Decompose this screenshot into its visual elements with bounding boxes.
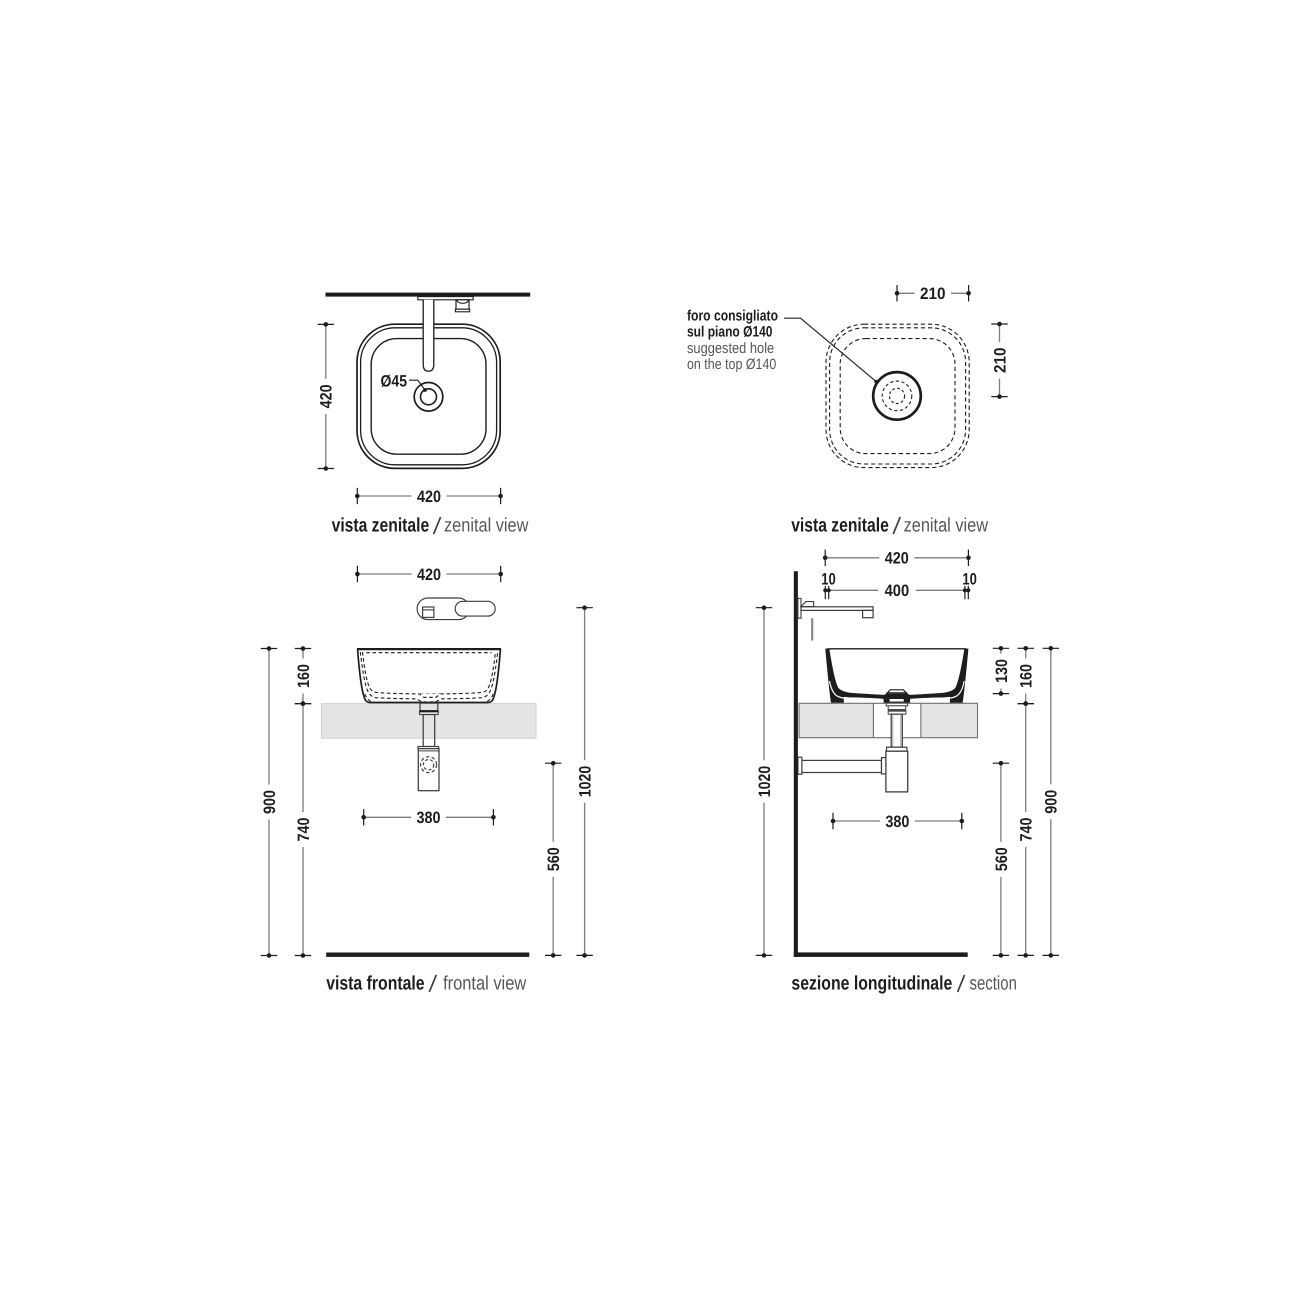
svg-text:160: 160: [295, 664, 313, 688]
svg-text:740: 740: [295, 818, 313, 842]
svg-text:560: 560: [993, 847, 1011, 871]
svg-text:vista frontale: vista frontale: [326, 972, 425, 994]
svg-text:zenital view: zenital view: [904, 515, 989, 537]
svg-text:400: 400: [885, 582, 910, 600]
svg-text:on the top Ø140: on the top Ø140: [687, 356, 776, 373]
svg-text:130: 130: [993, 659, 1011, 683]
svg-text:section: section: [970, 972, 1017, 994]
svg-text:1020: 1020: [756, 766, 774, 798]
svg-text:420: 420: [885, 550, 909, 568]
svg-text:10: 10: [962, 571, 977, 589]
svg-text:sul piano Ø140: sul piano Ø140: [687, 324, 773, 341]
svg-text:380: 380: [885, 813, 909, 831]
svg-text:210: 210: [920, 285, 946, 303]
svg-text:sezione longitudinale: sezione longitudinale: [791, 972, 952, 994]
svg-text:420: 420: [417, 566, 441, 584]
svg-text:900: 900: [261, 790, 279, 814]
svg-text:zenital view: zenital view: [444, 515, 529, 537]
svg-text:740: 740: [1018, 818, 1036, 842]
svg-text:380: 380: [417, 809, 441, 827]
svg-text:210: 210: [991, 348, 1009, 374]
svg-text:foro consigliato: foro consigliato: [687, 307, 778, 324]
svg-text:560: 560: [545, 847, 563, 871]
svg-text:Ø45: Ø45: [381, 372, 408, 390]
svg-text:900: 900: [1043, 790, 1061, 814]
svg-text:1020: 1020: [577, 766, 595, 798]
svg-text:160: 160: [1018, 664, 1036, 688]
svg-text:suggested hole: suggested hole: [687, 340, 774, 357]
svg-text:10: 10: [821, 571, 836, 589]
svg-text:420: 420: [318, 384, 336, 408]
svg-text:vista zenitale: vista zenitale: [791, 515, 889, 537]
svg-text:vista zenitale: vista zenitale: [332, 515, 430, 537]
svg-text:420: 420: [417, 488, 441, 506]
svg-text:frontal view: frontal view: [443, 972, 527, 994]
